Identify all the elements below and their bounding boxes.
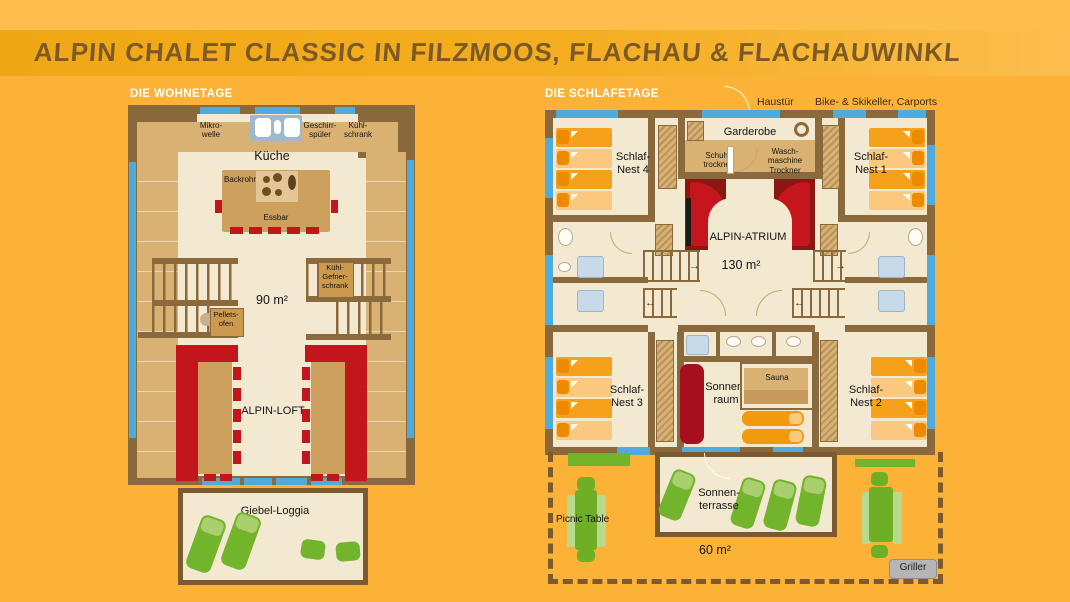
wall bbox=[845, 215, 927, 222]
shoe-rack bbox=[687, 121, 704, 141]
window-strip bbox=[545, 138, 553, 198]
sink-basin bbox=[284, 118, 300, 137]
stair-arrow: ← bbox=[794, 298, 805, 309]
picnic-bench bbox=[893, 492, 902, 544]
burner bbox=[275, 189, 282, 196]
window-strip bbox=[927, 255, 935, 325]
fridge-label: Kühl- schrank bbox=[340, 121, 376, 140]
loft-label: ALPIN-LOFT bbox=[228, 405, 318, 418]
wall bbox=[678, 118, 685, 179]
railing-balusters bbox=[152, 264, 238, 300]
wall bbox=[137, 114, 197, 122]
wall bbox=[845, 325, 927, 332]
bed bbox=[871, 357, 927, 376]
schlafetage-area-label: 130 m² bbox=[710, 258, 772, 273]
bed bbox=[556, 128, 612, 147]
cushion bbox=[327, 474, 339, 481]
front-door-label: Haustür bbox=[757, 96, 794, 108]
bed bbox=[556, 191, 612, 210]
stool bbox=[306, 227, 319, 234]
window-strip bbox=[545, 255, 553, 325]
essbar-label: Essbar bbox=[258, 213, 294, 222]
wohnetage-area-label: 90 m² bbox=[248, 293, 296, 308]
planter bbox=[855, 459, 915, 467]
keller-label: Bike- & Skikeller, Carports bbox=[815, 96, 937, 108]
atrium-label: ALPIN-ATRIUM bbox=[698, 231, 798, 244]
sofa bbox=[345, 345, 367, 481]
wardrobe bbox=[658, 125, 677, 189]
window-strip bbox=[129, 162, 136, 438]
loft-table bbox=[198, 362, 232, 474]
railing-balusters bbox=[336, 302, 391, 334]
bed bbox=[556, 421, 612, 440]
stool bbox=[331, 200, 338, 213]
stair-arrow: ← bbox=[645, 298, 656, 309]
cushion bbox=[233, 388, 241, 401]
pan bbox=[288, 175, 296, 190]
microwave-label: Mikro- welle bbox=[192, 121, 230, 140]
picnic-seat bbox=[577, 549, 595, 562]
wardrobe bbox=[656, 340, 674, 442]
toilet bbox=[908, 228, 923, 246]
wardrobe bbox=[822, 125, 840, 189]
window-strip bbox=[556, 110, 618, 118]
cushion bbox=[233, 451, 241, 464]
sun-terrace-label: Sonnen- terrasse bbox=[688, 487, 750, 512]
bed bbox=[869, 128, 925, 147]
picnic-seat bbox=[871, 545, 888, 558]
dishwasher-label: Geschirr- spüler bbox=[300, 121, 340, 140]
sauna-lounger bbox=[742, 411, 804, 426]
railing-bar bbox=[306, 334, 391, 340]
sink bbox=[558, 262, 571, 272]
griller-badge: Griller bbox=[889, 559, 937, 579]
nest2-label: Schlaf- Nest 2 bbox=[840, 384, 892, 409]
picnic-seat bbox=[577, 477, 595, 491]
window-strip bbox=[702, 110, 780, 118]
garden-stool bbox=[300, 538, 326, 560]
window-strip bbox=[545, 357, 553, 429]
stool bbox=[287, 227, 300, 234]
window-strip bbox=[927, 357, 935, 429]
window-strip bbox=[335, 107, 355, 114]
kitchen-label: Küche bbox=[242, 149, 302, 164]
cushion bbox=[302, 388, 310, 401]
sink bbox=[726, 336, 741, 347]
nest1-label: Schlaf- Nest 1 bbox=[845, 151, 897, 176]
picnic-table-label: Picnic Table bbox=[556, 514, 616, 526]
shower bbox=[878, 256, 905, 278]
bed bbox=[556, 357, 612, 376]
tv-panel bbox=[686, 198, 691, 246]
sink-basin bbox=[255, 118, 271, 137]
sink bbox=[751, 336, 766, 347]
stool bbox=[249, 227, 262, 234]
cushion bbox=[311, 474, 323, 481]
window-strip bbox=[833, 110, 866, 118]
oven-label: Backrohr bbox=[224, 175, 258, 184]
stair-arrow: → bbox=[835, 261, 846, 272]
sofa bbox=[176, 345, 198, 481]
shower bbox=[878, 290, 905, 312]
wall bbox=[553, 325, 648, 332]
window-strip bbox=[927, 145, 935, 205]
sauna-bench bbox=[744, 390, 808, 404]
cushion bbox=[302, 430, 310, 443]
stool bbox=[230, 227, 243, 234]
window-strip bbox=[200, 107, 240, 114]
bed bbox=[556, 149, 612, 168]
washing-machine-icon bbox=[794, 122, 809, 137]
window-strip bbox=[244, 478, 272, 485]
page-title: ALPIN CHALET CLASSIC IN FILZMOOS, FLACHA… bbox=[33, 37, 962, 68]
cushion bbox=[302, 367, 310, 380]
schlafetage-heading: DIE SCHLAFETAGE bbox=[545, 88, 659, 100]
picnic-table bbox=[869, 487, 893, 542]
floorplan-poster: ALPIN CHALET CLASSIC IN FILZMOOS, FLACHA… bbox=[0, 0, 1070, 602]
door-leaf bbox=[727, 146, 734, 174]
stool bbox=[215, 200, 222, 213]
shower bbox=[577, 290, 604, 312]
wall bbox=[553, 215, 648, 222]
pellet-stove-label: Pellets- ofen bbox=[210, 311, 242, 329]
freezer-label: Kühl- Gefrier- schrank bbox=[317, 264, 353, 291]
wohnetage-heading: DIE WOHNETAGE bbox=[130, 88, 233, 100]
cushion bbox=[233, 430, 241, 443]
sink bbox=[786, 336, 801, 347]
cushion bbox=[204, 474, 216, 481]
sauna-label: Sauna bbox=[748, 373, 806, 382]
nest4-label: Schlaf- Nest 4 bbox=[608, 151, 658, 176]
loft-table bbox=[311, 362, 345, 474]
window-strip bbox=[407, 160, 414, 438]
stool bbox=[268, 227, 281, 234]
shower bbox=[577, 256, 604, 278]
nest3-label: Schlaf- Nest 3 bbox=[602, 384, 652, 409]
sink-drainer bbox=[274, 120, 281, 134]
wall bbox=[716, 332, 720, 356]
picnic-seat bbox=[871, 472, 888, 486]
sauna-lounger bbox=[742, 429, 804, 444]
burner bbox=[273, 173, 282, 182]
wall bbox=[678, 325, 815, 332]
planter bbox=[568, 453, 630, 466]
burner bbox=[263, 176, 270, 183]
window-strip bbox=[898, 110, 926, 118]
burner bbox=[262, 187, 271, 196]
garden-stool bbox=[335, 541, 361, 562]
toilet bbox=[558, 228, 573, 246]
cushion bbox=[220, 474, 232, 481]
bed bbox=[871, 421, 927, 440]
bed bbox=[869, 191, 925, 210]
window-strip bbox=[276, 478, 307, 485]
wardrobe bbox=[820, 340, 838, 442]
shower bbox=[686, 335, 709, 355]
terrace-area-label: 60 m² bbox=[690, 543, 740, 558]
cushion bbox=[302, 451, 310, 464]
stair-arrow: → bbox=[689, 261, 700, 272]
washer-label: Wasch- maschine Trockner bbox=[760, 147, 810, 175]
window-strip bbox=[255, 107, 300, 114]
bed bbox=[556, 170, 612, 189]
garderobe-label: Garderobe bbox=[700, 126, 800, 139]
cushion bbox=[233, 367, 241, 380]
front-door-arc bbox=[724, 86, 750, 112]
wall bbox=[815, 118, 822, 179]
wall bbox=[772, 332, 776, 356]
